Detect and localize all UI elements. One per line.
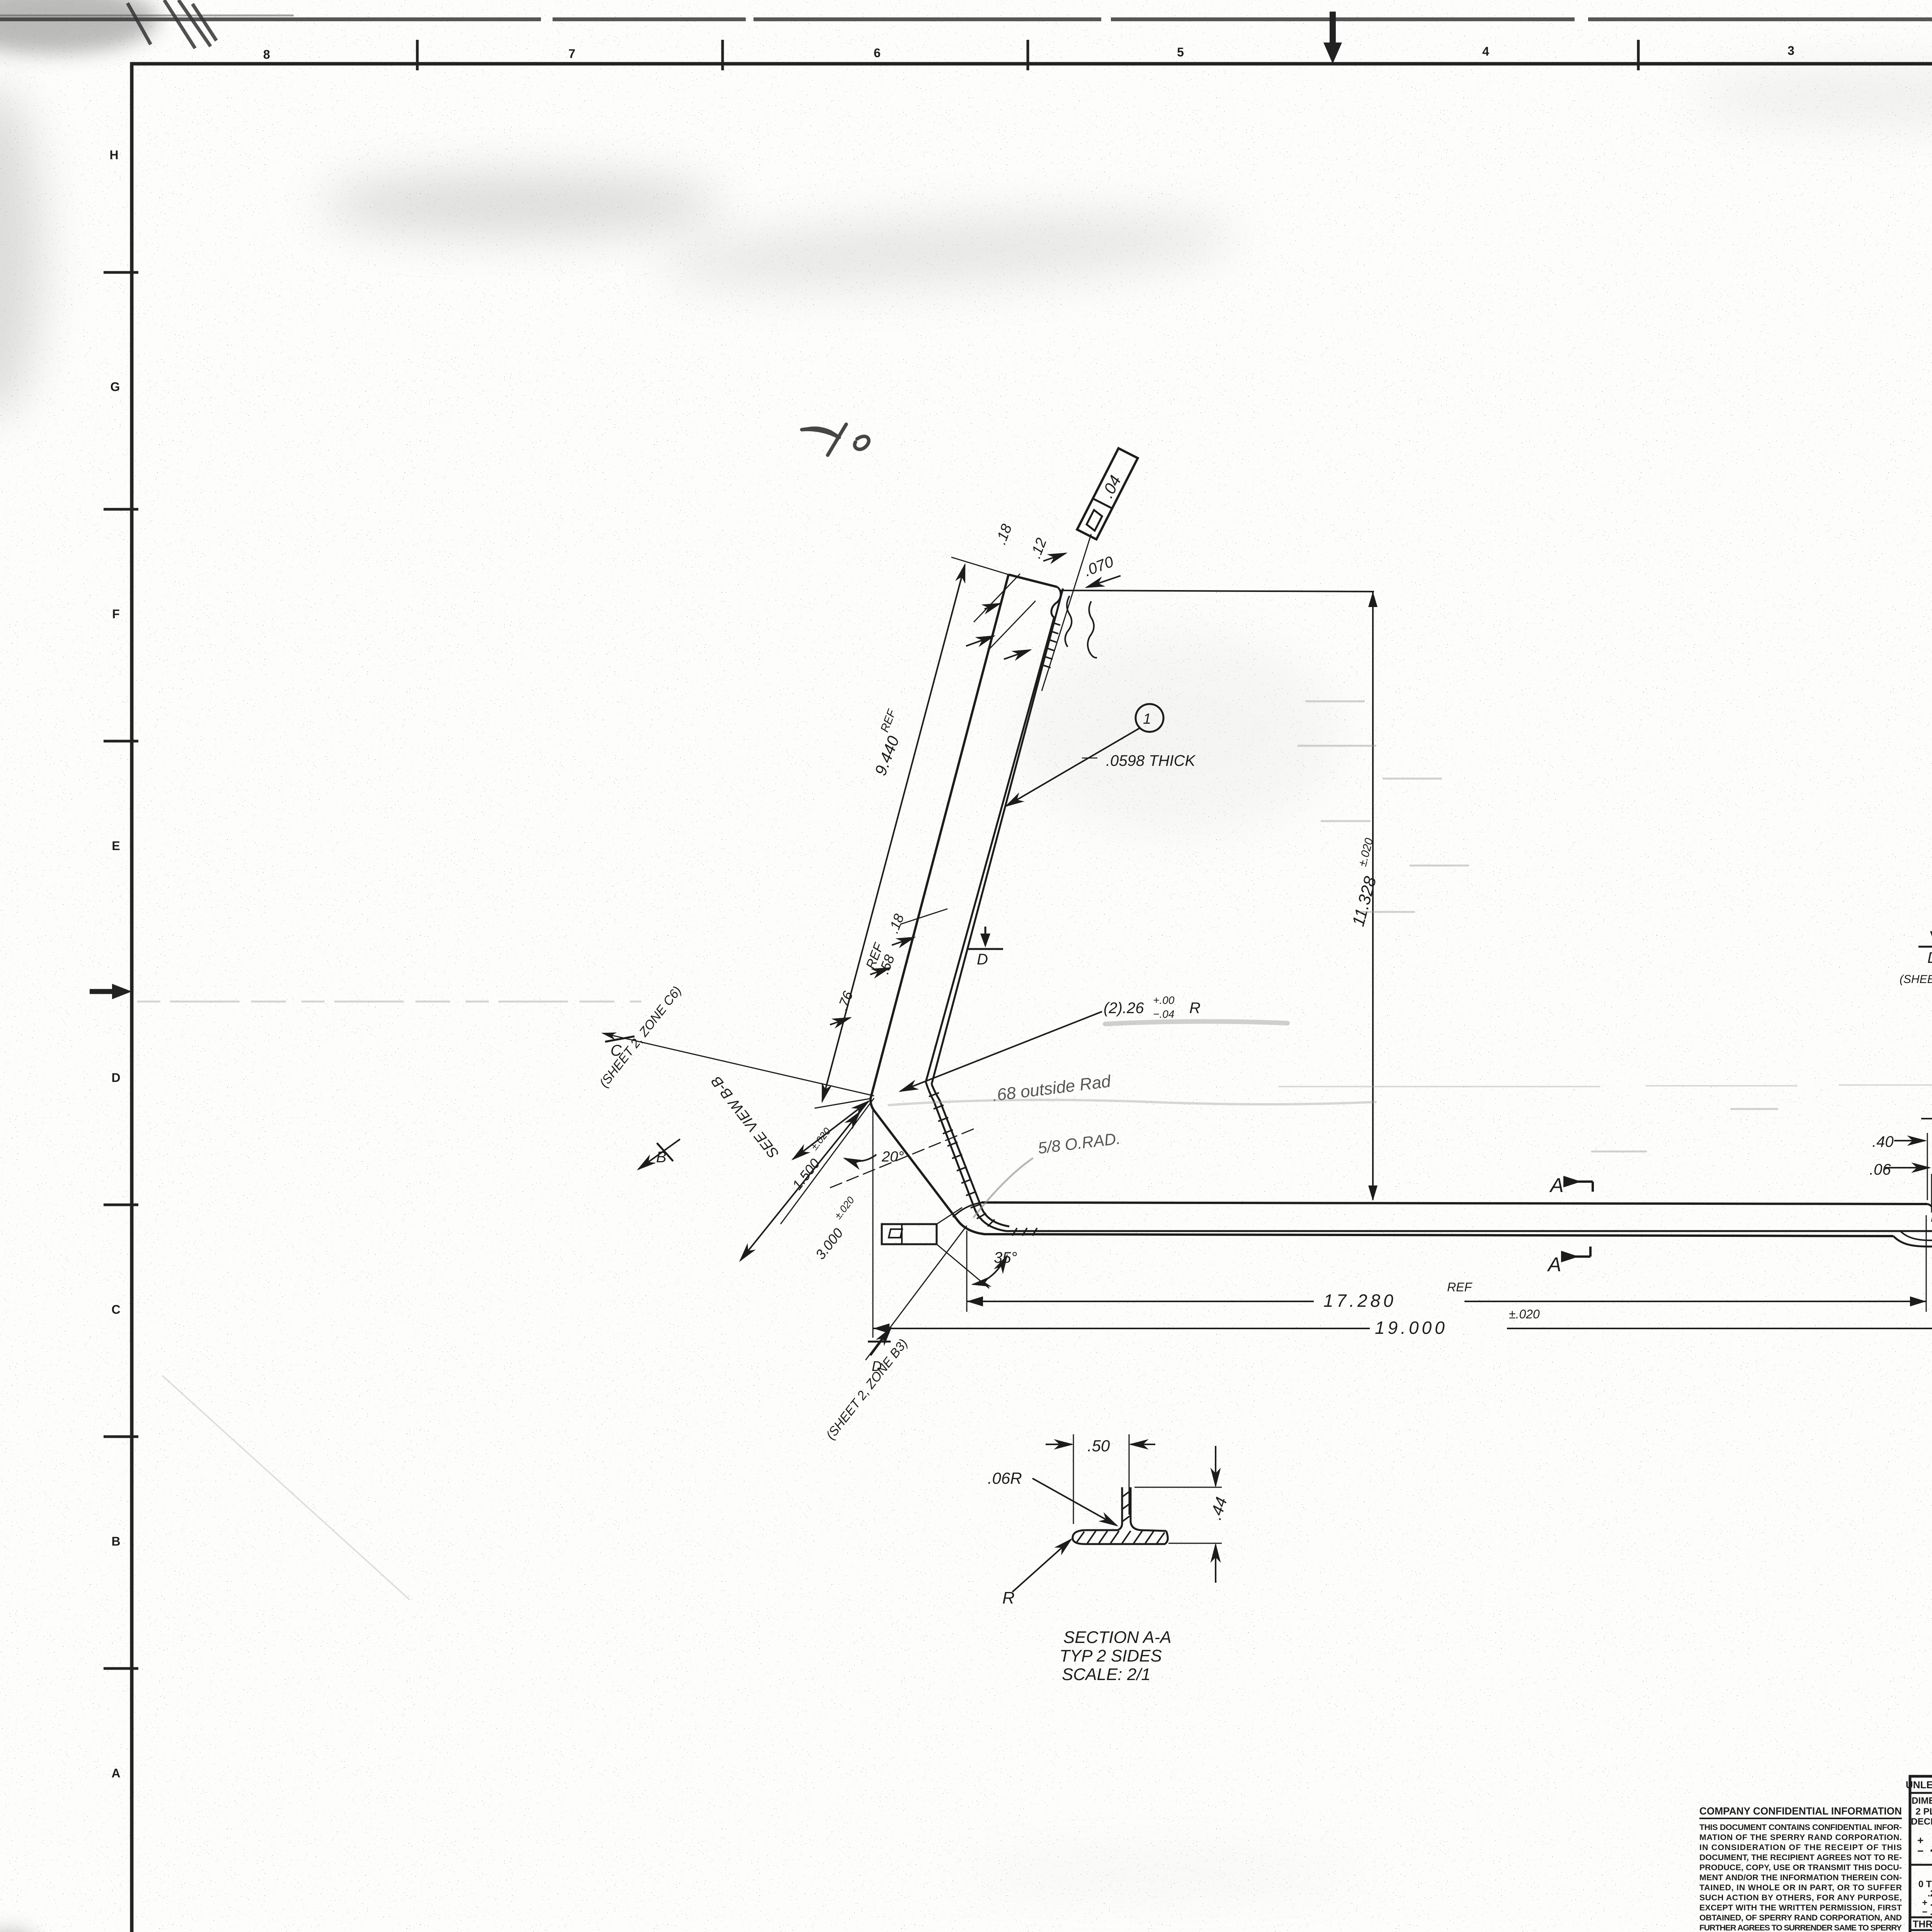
svg-text:− .002: − .002: [1922, 1907, 1932, 1917]
svg-text:PRODUCE, COPY, USE OR TRANSMIT: PRODUCE, COPY, USE OR TRANSMIT THIS DOCU…: [1699, 1863, 1902, 1872]
svg-text:.0598 THICK: .0598 THICK: [1106, 752, 1196, 769]
svg-text:MENT AND/OR THE INFORMATION TH: MENT AND/OR THE INFORMATION THEREIN CON-: [1699, 1873, 1902, 1882]
svg-text:D: D: [1927, 949, 1932, 966]
svg-text:−.04: −.04: [1153, 1008, 1174, 1020]
svg-text:SECTION A-A: SECTION A-A: [1063, 1628, 1172, 1647]
svg-text:0 THRU: 0 THRU: [1918, 1879, 1932, 1889]
svg-text:SUCH ACTION BY OTHERS, FOR ANY: SUCH ACTION BY OTHERS, FOR ANY PURPOSE,: [1699, 1893, 1902, 1902]
svg-text:.06R: .06R: [988, 1469, 1022, 1487]
svg-text:A: A: [111, 1766, 120, 1780]
svg-text:—: —: [1082, 748, 1097, 765]
svg-text:DECIMALS: DECIMALS: [1911, 1816, 1932, 1827]
svg-text:R: R: [1002, 1588, 1015, 1607]
svg-text:+: +: [1917, 1834, 1923, 1846]
svg-text:35°: 35°: [994, 1249, 1017, 1266]
svg-text:1: 1: [1143, 711, 1151, 727]
svg-text:D: D: [977, 951, 988, 968]
svg-text:H: H: [109, 148, 118, 162]
svg-text:+.00: +.00: [1153, 994, 1175, 1006]
svg-text:A: A: [1547, 1253, 1561, 1276]
svg-text:UNLESS OTHERWISE SPECIFIED: UNLESS OTHERWISE SPECIFIED: [1906, 1779, 1932, 1791]
svg-text:(2).26: (2).26: [1104, 1000, 1144, 1017]
svg-text:COMPANY CONFIDENTIAL INFORMATI: COMPANY CONFIDENTIAL INFORMATION: [1699, 1805, 1902, 1817]
svg-text:COMMODITY CODE: COMMODITY CODE: [1913, 1930, 1932, 1932]
svg-text:TYP 2 SIDES: TYP 2 SIDES: [1060, 1646, 1162, 1665]
svg-text:G: G: [111, 380, 120, 394]
svg-text:OBTAINED, OF SPERRY RAND CORPO: OBTAINED, OF SPERRY RAND CORPORATION, AN…: [1699, 1913, 1902, 1922]
svg-text:.06: .06: [1869, 1161, 1891, 1178]
svg-text:C: C: [111, 1303, 120, 1316]
svg-text:TAINED, IN WHOLE OR IN PART, O: TAINED, IN WHOLE OR IN PART, OR TO SUFFE…: [1699, 1883, 1902, 1892]
svg-text:FURTHER AGREES TO SURRENDER SA: FURTHER AGREES TO SURRENDER SAME TO SPER…: [1699, 1923, 1902, 1932]
svg-text:20°: 20°: [881, 1149, 904, 1165]
svg-text:3: 3: [1787, 44, 1794, 58]
svg-text:19.000: 19.000: [1375, 1318, 1448, 1338]
svg-text:DIMENSIONS IN INCHES TOL. ON: DIMENSIONS IN INCHES TOL. ON: [1912, 1796, 1932, 1806]
svg-text:8: 8: [263, 48, 270, 61]
svg-text:MATION OF THE SPERRY RAND CORP: MATION OF THE SPERRY RAND CORPORATION.: [1699, 1833, 1902, 1842]
svg-text:F: F: [112, 607, 120, 621]
svg-text:.250: .250: [1928, 1888, 1932, 1899]
svg-text:E: E: [112, 839, 120, 853]
svg-text:2 PLACE: 2 PLACE: [1915, 1806, 1932, 1817]
svg-text:−: −: [1917, 1845, 1923, 1857]
svg-text:DOCUMENT, THE RECIPIENT AGREES: DOCUMENT, THE RECIPIENT AGREES NOT TO RE…: [1699, 1853, 1902, 1862]
svg-text:.40: .40: [1872, 1133, 1894, 1150]
svg-text:.03: .03: [1930, 1839, 1932, 1855]
svg-text:THREADS: EXT. CL 2A, INT CL 2B: THREADS: EXT. CL 2A, INT CL 2B: [1913, 1919, 1932, 1930]
svg-text:17.280: 17.280: [1323, 1291, 1396, 1311]
svg-text:+ .003: + .003: [1922, 1898, 1932, 1908]
svg-text:B: B: [656, 1149, 667, 1166]
svg-text:IN CONSIDERATION OF THE RECEIP: IN CONSIDERATION OF THE RECEIPT OF THIS: [1699, 1843, 1902, 1852]
svg-text:REF: REF: [1447, 1280, 1473, 1294]
svg-text:7: 7: [568, 47, 575, 61]
svg-text:D: D: [111, 1071, 120, 1085]
svg-text:6: 6: [874, 46, 881, 60]
svg-text:EXCEPT WITH THE WRITTEN PERMIS: EXCEPT WITH THE WRITTEN PERMISSION, FIRS…: [1699, 1903, 1902, 1912]
svg-text:(SHEET 3): (SHEET 3): [1900, 973, 1932, 986]
svg-text:5: 5: [1177, 45, 1184, 59]
svg-text:±.020: ±.020: [1509, 1307, 1540, 1321]
svg-text:THIS DOCUMENT CONTAINS CONFIDE: THIS DOCUMENT CONTAINS CONFIDENTIAL INFO…: [1699, 1823, 1902, 1832]
svg-text:SCALE: 2/1: SCALE: 2/1: [1062, 1665, 1151, 1684]
svg-text:.50: .50: [1087, 1437, 1110, 1455]
svg-text:4: 4: [1482, 44, 1489, 58]
svg-text:B: B: [111, 1534, 120, 1548]
svg-text:A: A: [1549, 1174, 1564, 1197]
svg-text:R: R: [1189, 1000, 1201, 1017]
